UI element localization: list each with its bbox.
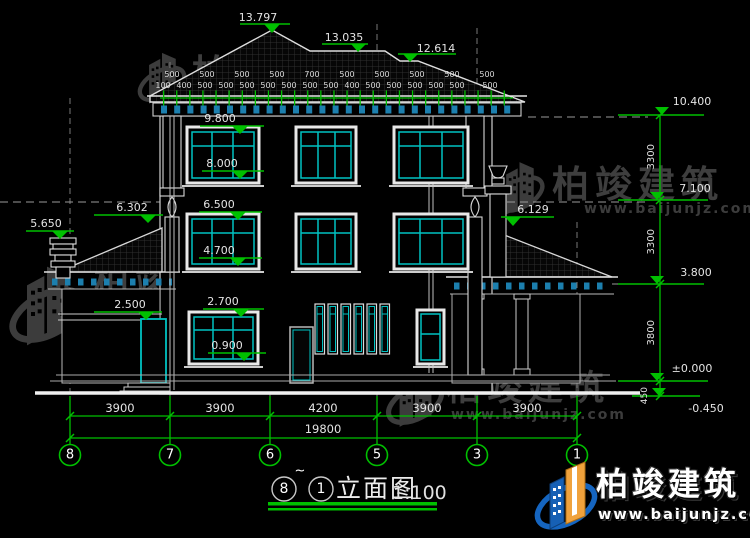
level-label: 13.797 bbox=[239, 12, 278, 23]
level-label: 3.800 bbox=[680, 267, 712, 278]
dim-label: 3900 bbox=[205, 403, 234, 415]
title-tilde: ~ bbox=[295, 465, 306, 478]
level-label: 5.650 bbox=[30, 218, 62, 229]
grid-bubbles bbox=[60, 445, 588, 466]
dim-total-label: 19800 bbox=[305, 424, 342, 436]
level-label: 2.700 bbox=[207, 296, 239, 307]
level-label: 8.000 bbox=[206, 158, 238, 169]
dim-label: 400 bbox=[344, 82, 359, 90]
dim-label: 3900 bbox=[412, 403, 441, 415]
dim-label: 400 bbox=[176, 82, 191, 90]
dim-label: 3900 bbox=[105, 403, 134, 415]
windows-floor2 bbox=[182, 214, 473, 272]
title-to-bubble: 1 bbox=[317, 482, 326, 496]
dim-label: 500 bbox=[239, 82, 254, 90]
dim-label: 4200 bbox=[308, 403, 337, 415]
level-label: 2.500 bbox=[114, 299, 146, 310]
dim-label: 500 bbox=[323, 82, 338, 90]
dim-label: 500 bbox=[449, 82, 464, 90]
title-from-bubble: 8 bbox=[280, 482, 289, 496]
window bbox=[389, 127, 473, 186]
dim-label: 500 bbox=[234, 71, 249, 79]
dim-label: 500 bbox=[218, 82, 233, 90]
dim-label: 500 bbox=[428, 82, 443, 90]
grid-bubble-6: 6 bbox=[266, 449, 274, 462]
grid-bubble-8: 8 bbox=[66, 449, 74, 462]
left-wing bbox=[44, 228, 180, 394]
dim-label: 500 bbox=[407, 82, 422, 90]
vdim-label: 450 bbox=[641, 387, 650, 404]
level-label: 10.400 bbox=[673, 96, 712, 107]
grid-bubble-1: 1 bbox=[573, 449, 581, 462]
elevation-drawing-canvas: 柏竣建筑 www.baijunjz.com 柏竣建筑 www.baijunjz.… bbox=[0, 0, 750, 538]
dim-label: 3900 bbox=[512, 403, 541, 415]
dim-label: 500 bbox=[482, 82, 497, 90]
dim-label: 500 bbox=[260, 82, 275, 90]
grid-bubble-3: 3 bbox=[473, 449, 481, 462]
dim-label: 500 bbox=[281, 82, 296, 90]
dim-label: 500 bbox=[365, 82, 380, 90]
vdim-label: 3300 bbox=[647, 144, 657, 169]
dim-label: 500 bbox=[199, 71, 214, 79]
dim-label: 500 bbox=[374, 71, 389, 79]
footer-url: www.baijunjz.com bbox=[598, 508, 750, 523]
window bbox=[291, 214, 361, 272]
dim-label: 500 bbox=[444, 71, 459, 79]
dim-label: 500 bbox=[269, 71, 284, 79]
level-label: -0.450 bbox=[688, 403, 723, 414]
dim-label: 500 bbox=[197, 82, 212, 90]
dim-label: 500 bbox=[409, 71, 424, 79]
level-label: ±0.000 bbox=[672, 363, 713, 374]
porch-door bbox=[141, 319, 166, 383]
dim-label: 100 bbox=[155, 82, 170, 90]
window bbox=[389, 214, 473, 272]
window bbox=[291, 127, 361, 186]
level-label: 4.700 bbox=[203, 245, 235, 256]
footer-brand: 柏竣建筑 bbox=[596, 468, 740, 500]
dim-label: 500 bbox=[386, 82, 401, 90]
dim-label: 500 bbox=[479, 71, 494, 79]
dim-label: 500 bbox=[339, 71, 354, 79]
window bbox=[182, 214, 264, 272]
vdim-label: 3800 bbox=[647, 320, 657, 345]
vdim-label: 3300 bbox=[647, 229, 657, 254]
grid-bubble-5: 5 bbox=[373, 449, 381, 462]
level-label: 12.614 bbox=[417, 43, 456, 54]
level-label: 7.100 bbox=[679, 183, 711, 194]
level-label: 6.500 bbox=[203, 199, 235, 210]
level-label: 0.900 bbox=[211, 340, 243, 351]
level-label: 13.035 bbox=[325, 32, 364, 43]
grid-bubble-7: 7 bbox=[166, 449, 174, 462]
level-label: 9.800 bbox=[204, 113, 236, 124]
right-wing-roof bbox=[494, 231, 612, 277]
dim-label: 500 bbox=[164, 71, 179, 79]
level-label: 6.129 bbox=[517, 204, 549, 215]
footer-logo-icon bbox=[531, 462, 602, 536]
small-window bbox=[413, 310, 448, 367]
level-label: 6.302 bbox=[116, 202, 148, 213]
drawing-scale: 1:100 bbox=[392, 484, 447, 503]
dim-label: 500 bbox=[302, 82, 317, 90]
dim-label: 700 bbox=[304, 71, 319, 79]
